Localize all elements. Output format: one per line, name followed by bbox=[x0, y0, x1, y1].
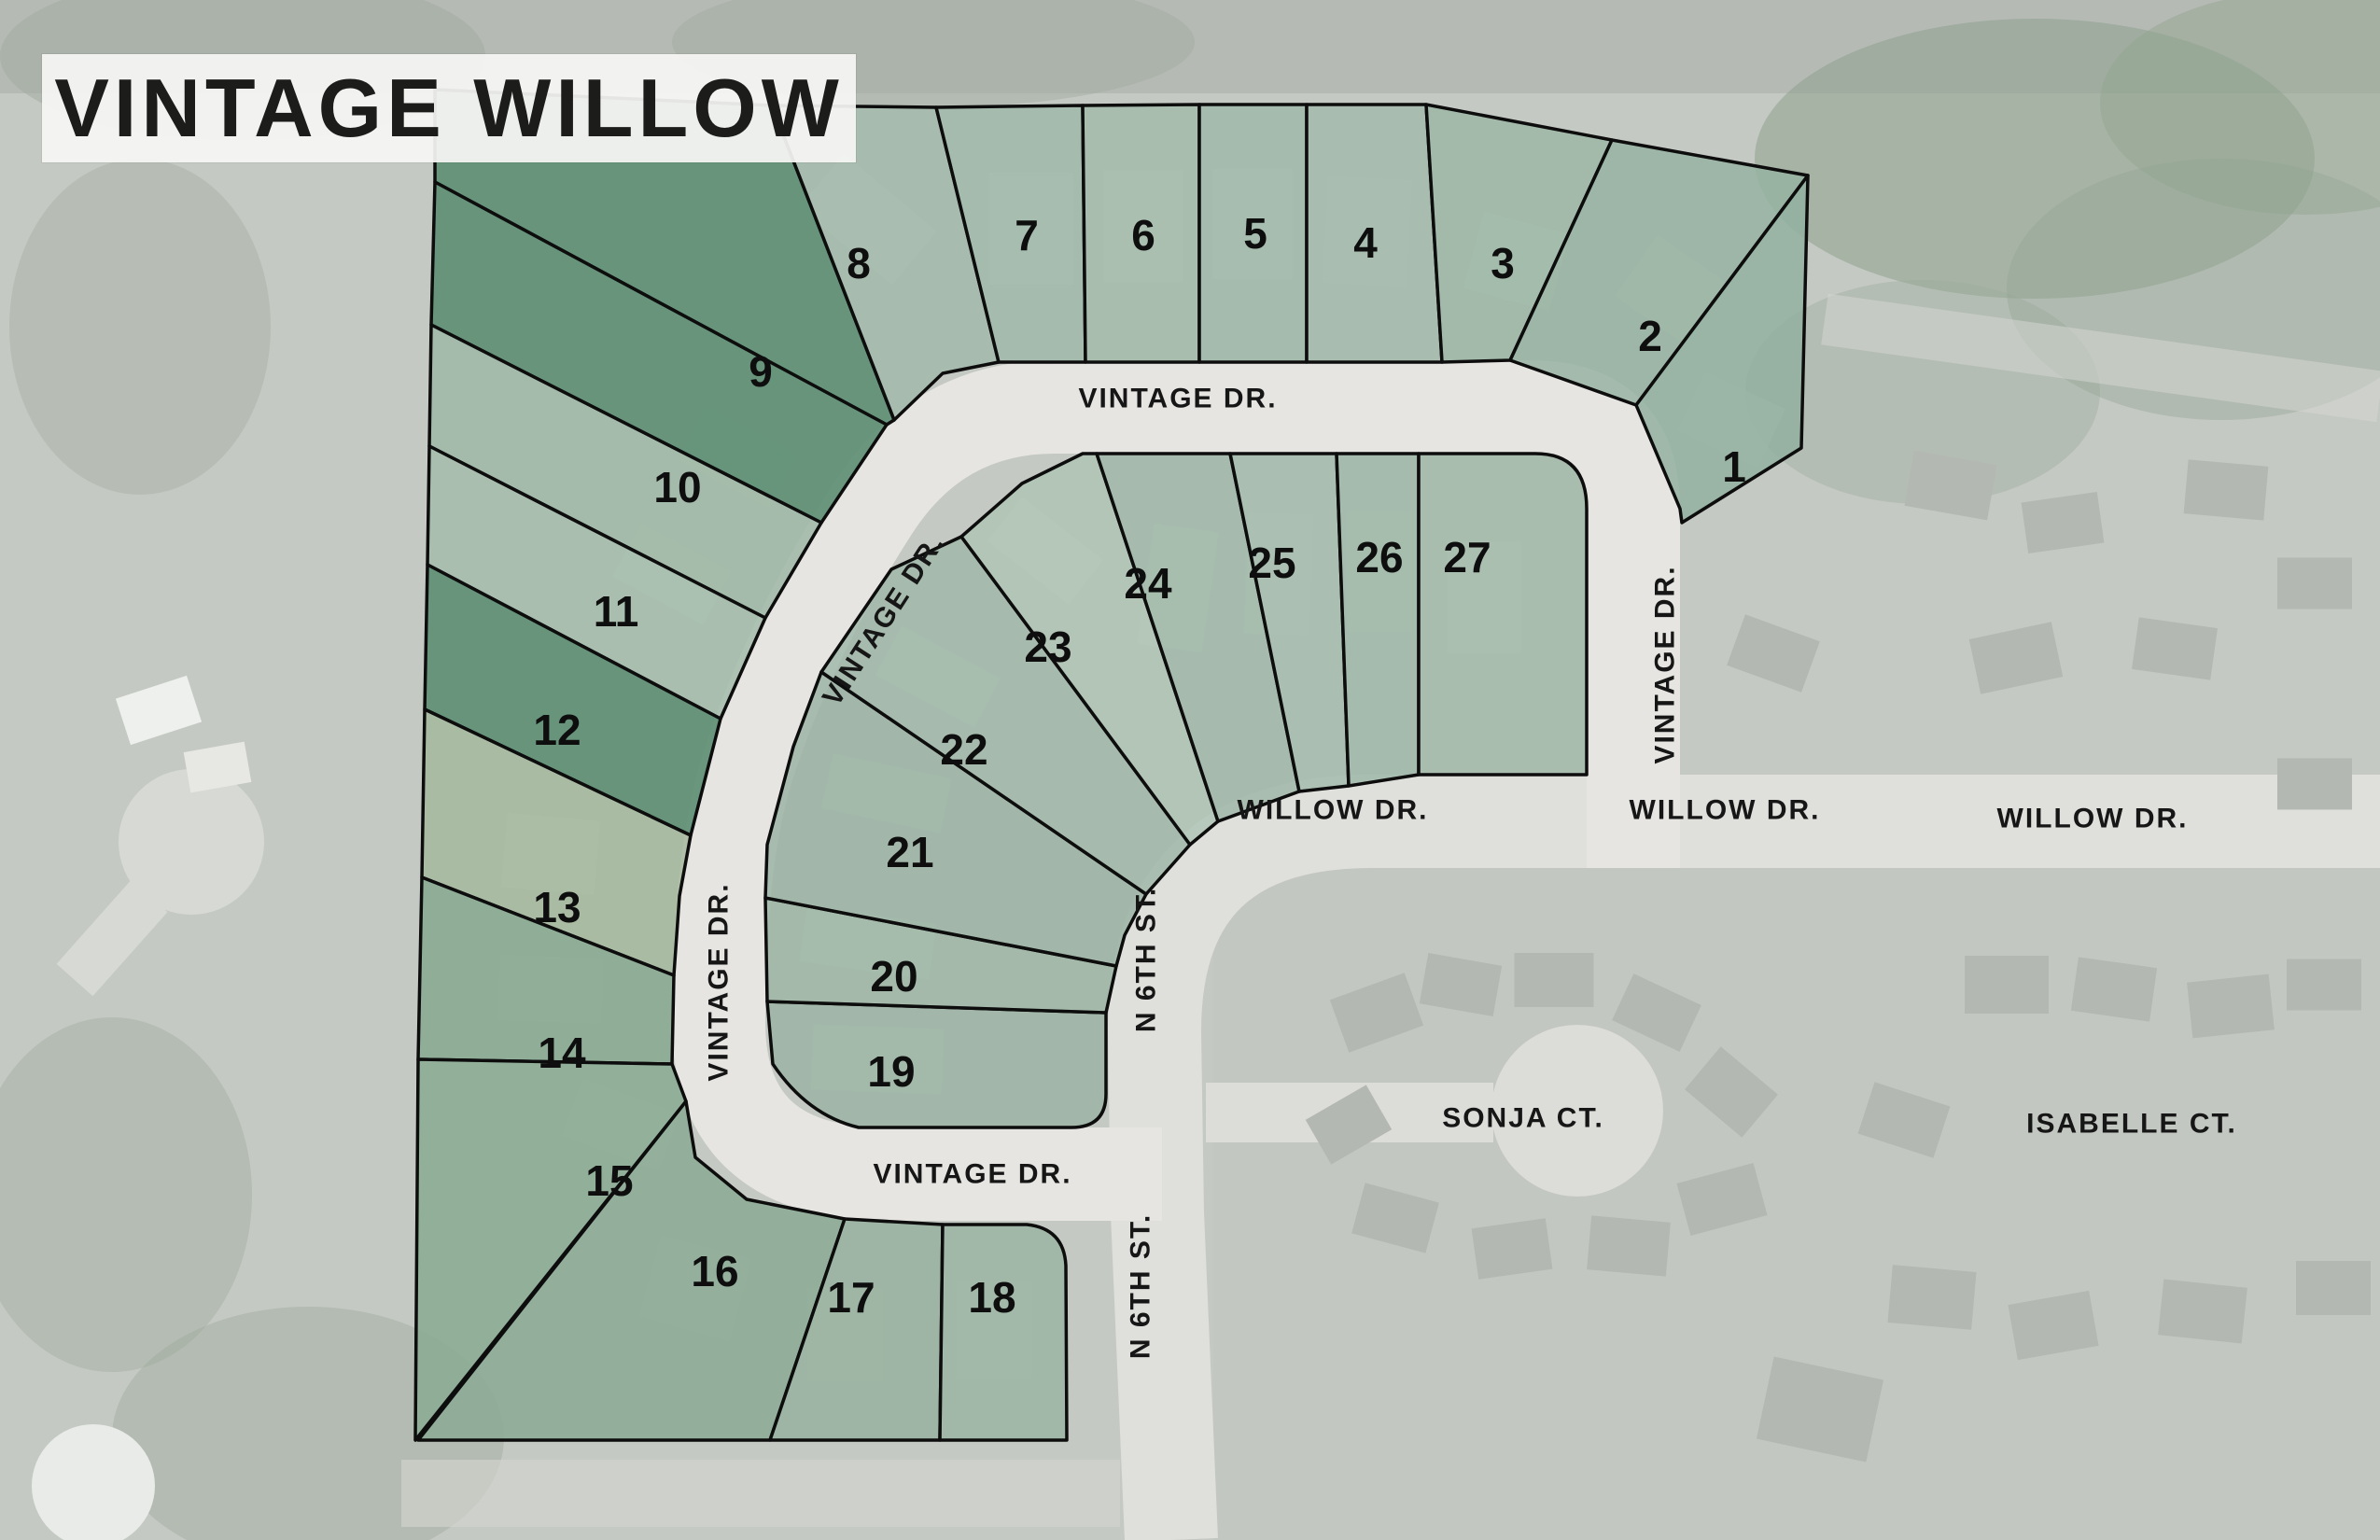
street-label-3: VINTAGE DR. bbox=[704, 882, 735, 1081]
lot-number-16: 16 bbox=[691, 1247, 738, 1295]
house-footprint bbox=[2187, 974, 2275, 1039]
lot-number-25: 25 bbox=[1248, 539, 1295, 587]
plat-map: VINTAGE DR.VINTAGE DR.VINTAGE DR.VINTAGE… bbox=[0, 0, 2380, 1540]
street-label-0: VINTAGE DR. bbox=[1078, 384, 1277, 414]
house-footprint bbox=[1965, 956, 2049, 1014]
lot-number-19: 19 bbox=[867, 1047, 915, 1096]
house-footprint bbox=[2022, 492, 2105, 553]
lot-number-20: 20 bbox=[870, 952, 917, 1001]
house-footprint bbox=[2277, 759, 2352, 810]
lot-number-3: 3 bbox=[1491, 239, 1515, 287]
lot-number-1: 1 bbox=[1722, 442, 1746, 491]
lot-polygon-27[interactable] bbox=[1419, 454, 1587, 775]
street-label-2: VINTAGE DR. bbox=[1650, 565, 1681, 763]
map-title: VINTAGE WILLOW bbox=[54, 61, 844, 156]
lot-number-23: 23 bbox=[1024, 623, 1071, 671]
lot-number-18: 18 bbox=[968, 1273, 1015, 1322]
street-label-10: SONJA CT. bbox=[1442, 1103, 1604, 1134]
house-footprint bbox=[1587, 1215, 1671, 1276]
lot-number-26: 26 bbox=[1355, 533, 1403, 581]
lot-number-2: 2 bbox=[1638, 312, 1662, 360]
lot-number-14: 14 bbox=[538, 1029, 586, 1077]
plat-map-canvas: VINTAGE DR.VINTAGE DR.VINTAGE DR.VINTAGE… bbox=[0, 0, 2380, 1540]
lot-number-21: 21 bbox=[886, 828, 933, 876]
street-label-5: WILLOW DR. bbox=[1238, 795, 1429, 826]
house-footprint bbox=[1472, 1218, 1553, 1280]
street-label-4: VINTAGE DR. bbox=[873, 1159, 1071, 1190]
street-label-9: N 6TH ST. bbox=[1126, 1213, 1156, 1359]
lot-number-27: 27 bbox=[1443, 533, 1491, 581]
street-label-11: ISABELLE CT. bbox=[2026, 1109, 2237, 1140]
map-title-box: VINTAGE WILLOW bbox=[42, 54, 856, 162]
lot-number-11: 11 bbox=[594, 587, 639, 636]
house-footprint bbox=[1515, 953, 1594, 1007]
lot-number-6: 6 bbox=[1131, 211, 1155, 259]
lot-polygon-19[interactable] bbox=[767, 1001, 1106, 1127]
house-footprint bbox=[2277, 558, 2352, 609]
house-footprint bbox=[2132, 617, 2218, 679]
house-footprint bbox=[2296, 1261, 2371, 1315]
lot-number-5: 5 bbox=[1243, 209, 1267, 258]
street-label-7: WILLOW DR. bbox=[1997, 804, 2189, 834]
lot-number-7: 7 bbox=[1015, 211, 1039, 259]
street-label-6: WILLOW DR. bbox=[1630, 795, 1821, 826]
lot-number-4: 4 bbox=[1353, 218, 1378, 267]
street-label-8: N 6TH ST. bbox=[1131, 887, 1162, 1032]
lot-number-24: 24 bbox=[1124, 559, 1172, 608]
lot-number-9: 9 bbox=[749, 347, 773, 396]
house-footprint bbox=[2158, 1279, 2247, 1343]
lot-number-15: 15 bbox=[585, 1156, 633, 1205]
house-footprint bbox=[1887, 1265, 1976, 1330]
house-footprint bbox=[2287, 959, 2361, 1011]
lot-number-22: 22 bbox=[940, 725, 987, 774]
aerial-trees bbox=[9, 159, 271, 495]
lot-polygon-18[interactable] bbox=[940, 1225, 1067, 1440]
house-footprint bbox=[2071, 957, 2157, 1021]
lot-polygon-26[interactable] bbox=[1337, 454, 1419, 786]
lot-number-17: 17 bbox=[827, 1273, 875, 1322]
lot-number-8: 8 bbox=[847, 239, 871, 287]
lot-number-12: 12 bbox=[533, 706, 581, 754]
lot-number-13: 13 bbox=[533, 883, 581, 931]
lot-number-10: 10 bbox=[653, 463, 701, 511]
house-footprint bbox=[2184, 459, 2269, 520]
